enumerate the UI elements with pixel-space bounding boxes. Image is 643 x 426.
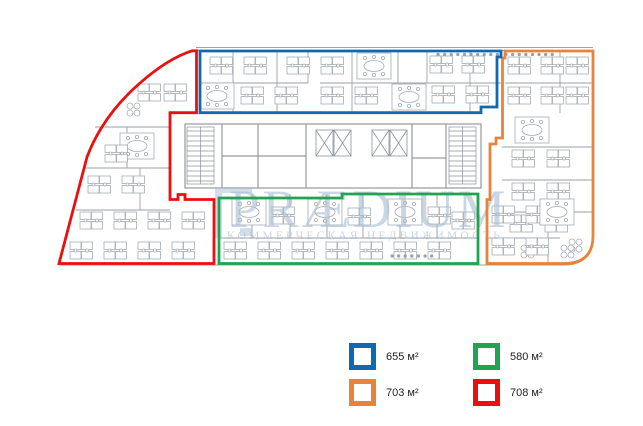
stairs-icon	[449, 127, 476, 184]
legend-swatch-red	[473, 379, 500, 406]
floorplan-page: PRÆDIUM КОММЕРЧЕСКАЯ НЕДВИЖИМОСТЬ 655 м²…	[0, 0, 643, 426]
legend-swatch-orange	[349, 379, 376, 406]
legend-label-green: 580 м²	[510, 351, 543, 363]
legend-swatch-blue	[349, 343, 376, 370]
floorplan-drawing: PRÆDIUM КОММЕРЧЕСКАЯ НЕДВИЖИМОСТЬ	[0, 0, 643, 426]
elevator-icon	[334, 130, 351, 156]
elevator-icon	[316, 130, 333, 156]
elevator-icon	[372, 130, 389, 156]
legend-item-green: 580 м²	[473, 343, 543, 370]
legend-item-red: 708 м²	[473, 379, 543, 406]
legend-label-orange: 703 м²	[386, 387, 419, 399]
watermark: PRÆDIUM КОММЕРЧЕСКАЯ НЕДВИЖИМОСТЬ	[215, 179, 509, 242]
elevator-icon	[390, 130, 407, 156]
legend-item-blue: 655 м²	[349, 343, 419, 370]
legend-item-orange: 703 м²	[349, 379, 419, 406]
stairs-icon	[187, 127, 214, 184]
watermark-subtitle: КОММЕРЧЕСКАЯ НЕДВИЖИМОСТЬ	[227, 230, 503, 242]
legend-label-blue: 655 м²	[386, 351, 419, 363]
legend-swatch-green	[473, 343, 500, 370]
legend-label-red: 708 м²	[510, 387, 543, 399]
